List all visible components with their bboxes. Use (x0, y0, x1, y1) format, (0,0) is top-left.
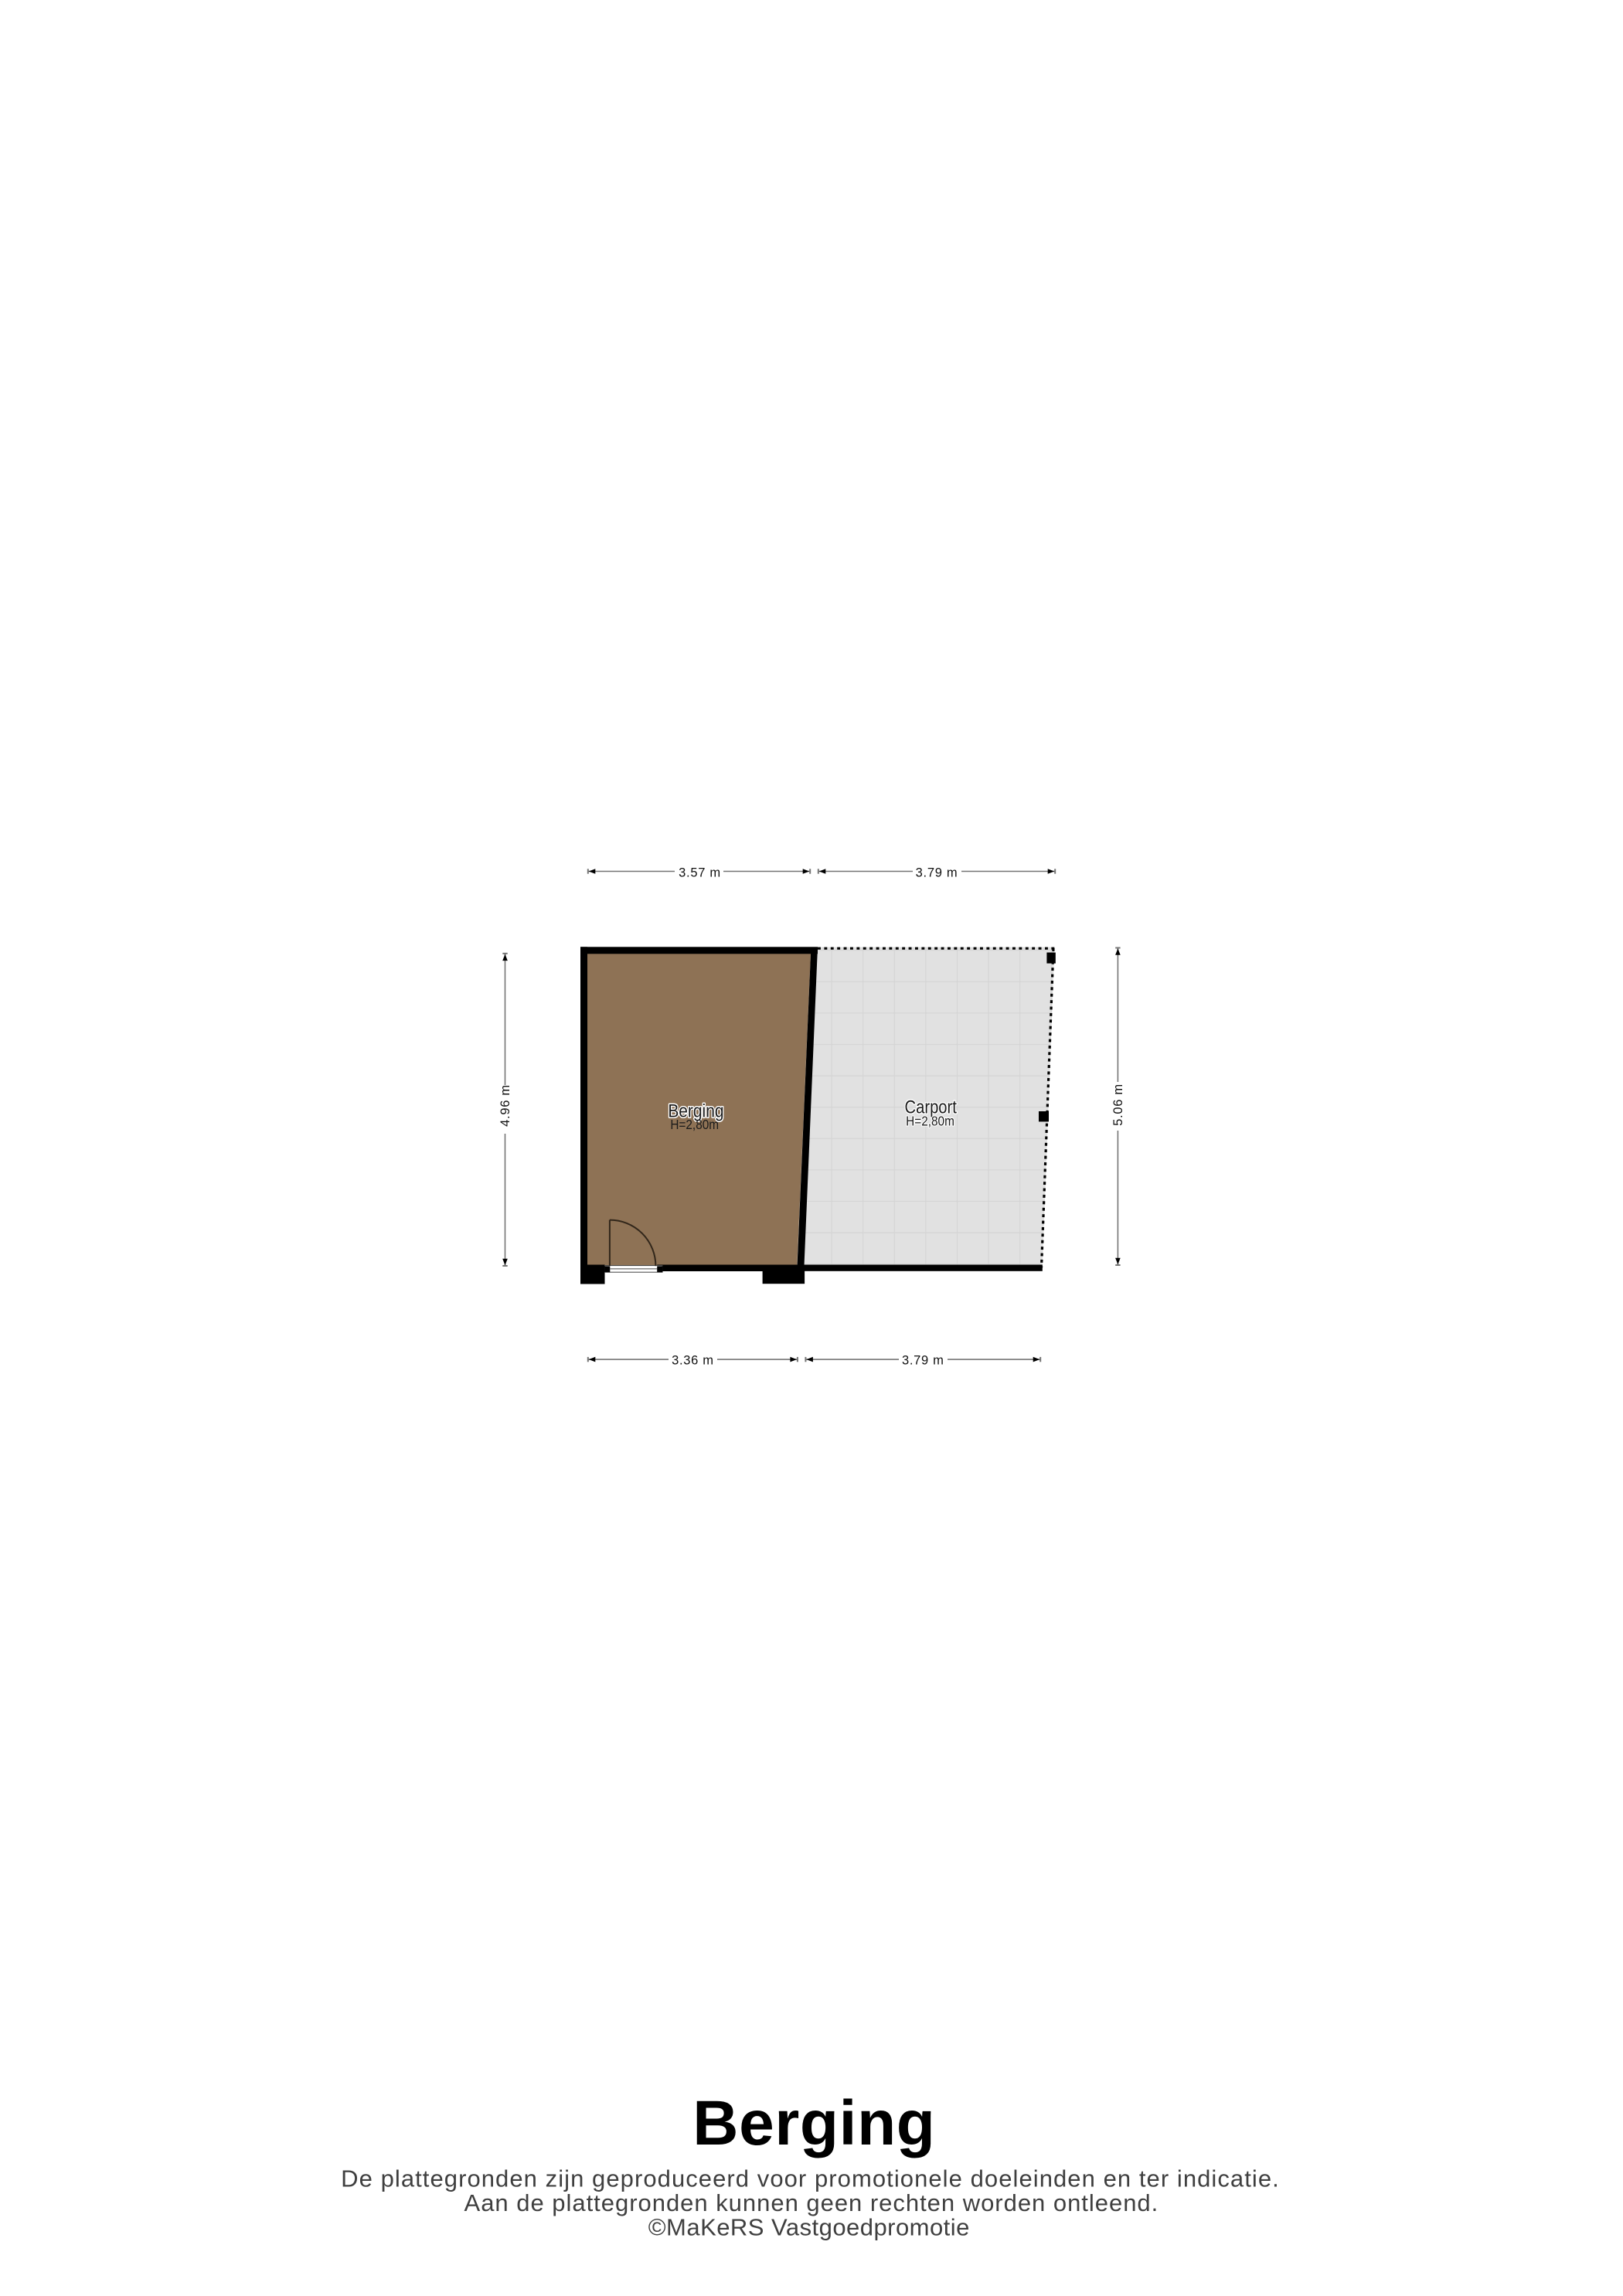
svg-text:4.96 m: 4.96 m (498, 1084, 512, 1127)
svg-text:H=2,80m: H=2,80m (670, 1117, 719, 1132)
svg-text:3.57 m: 3.57 m (679, 866, 721, 879)
svg-text:H=2,80m: H=2,80m (906, 1114, 954, 1129)
svg-text:De plattegronden zijn geproduc: De plattegronden zijn geproduceerd voor … (341, 2165, 1280, 2192)
svg-text:3.36 m: 3.36 m (672, 1353, 714, 1367)
svg-text:5.06 m: 5.06 m (1111, 1083, 1125, 1126)
svg-text:Aan de plattegronden kunnen ge: Aan de plattegronden kunnen geen rechten… (464, 2189, 1159, 2216)
svg-text:©MaKeRS Vastgoedpromotie: ©MaKeRS Vastgoedpromotie (648, 2214, 970, 2241)
svg-text:3.79 m: 3.79 m (916, 866, 958, 879)
svg-text:3.79 m: 3.79 m (902, 1353, 944, 1367)
svg-text:Berging: Berging (692, 2088, 935, 2158)
